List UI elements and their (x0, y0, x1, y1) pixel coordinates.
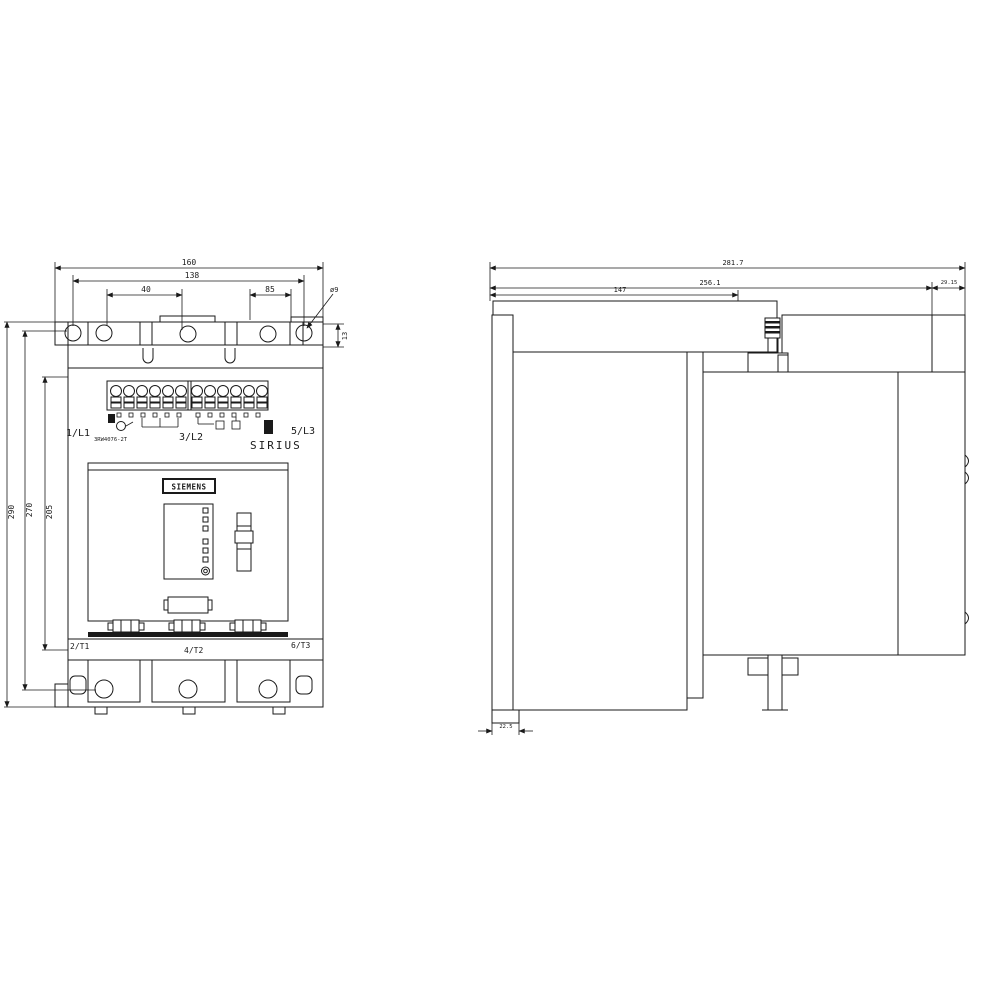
dim-mounting-width: 138 (185, 271, 200, 280)
terminal-label-6T3: 6/T3 (291, 641, 310, 650)
side-front-top (782, 315, 965, 372)
front-upper-step (68, 345, 323, 368)
side-top-hood (493, 301, 777, 352)
series-label: SIRIUS (250, 439, 302, 452)
dim-foot-depth: 22.5 (499, 724, 512, 730)
front-top-mounting-band (55, 316, 323, 345)
dim-body-height: 205 (45, 505, 54, 520)
side-view: 281.7 256.1 29.15 147 22.5 (478, 259, 969, 735)
dim-mounting-depth: 256.1 (699, 279, 720, 287)
terminal-label-1L1: 1/L1 (66, 428, 90, 439)
label-window (164, 597, 212, 613)
dim-lug-slot-height: 13 (341, 332, 349, 340)
dimension-drawing-page: 1/L1 3RW4076-2T 3/L2 5/L3 SIRIUS SIEMENS (0, 0, 1000, 1000)
selector-slider (235, 513, 253, 571)
side-bottom-foot (492, 710, 519, 723)
terminal-label-3L2: 3/L2 (179, 432, 203, 443)
dim-base-depth: 147 (614, 286, 627, 294)
dim-overall-depth: 281.7 (722, 259, 743, 267)
dim-hole-offset-right: 85 (265, 285, 275, 294)
side-mid-body (703, 372, 898, 655)
brand-logo: SIEMENS (171, 483, 206, 492)
cover-hinge-bumps (965, 455, 969, 624)
busbar-band (88, 632, 288, 637)
dim-overall-height: 290 (7, 505, 16, 520)
dim-mounting-height: 270 (25, 503, 34, 518)
dim-hole-diameter: ø9 (330, 286, 338, 294)
dim-overall-width: 160 (182, 258, 197, 267)
technical-drawing-canvas: 1/L1 3RW4076-2T 3/L2 5/L3 SIRIUS SIEMENS (0, 0, 1000, 1000)
side-deep-body (513, 352, 687, 710)
front-view: 1/L1 3RW4076-2T 3/L2 5/L3 SIRIUS SIEMENS (4, 258, 349, 714)
dim-cover-depth: 29.15 (941, 280, 958, 286)
terminal-label-2T1: 2/T1 (70, 642, 89, 651)
side-step (687, 352, 703, 698)
terminal-label-4T2: 4/T2 (184, 646, 203, 655)
type-code-label: 3RW4076-2T (94, 437, 128, 443)
side-front-cover (898, 372, 965, 655)
terminal-label-5L3: 5/L3 (291, 426, 315, 437)
dim-hole-offset-left: 40 (141, 285, 151, 294)
front-hmi-panel: SIEMENS (88, 463, 288, 621)
side-bottom-terminal (748, 655, 798, 710)
side-back-plate (492, 315, 513, 710)
